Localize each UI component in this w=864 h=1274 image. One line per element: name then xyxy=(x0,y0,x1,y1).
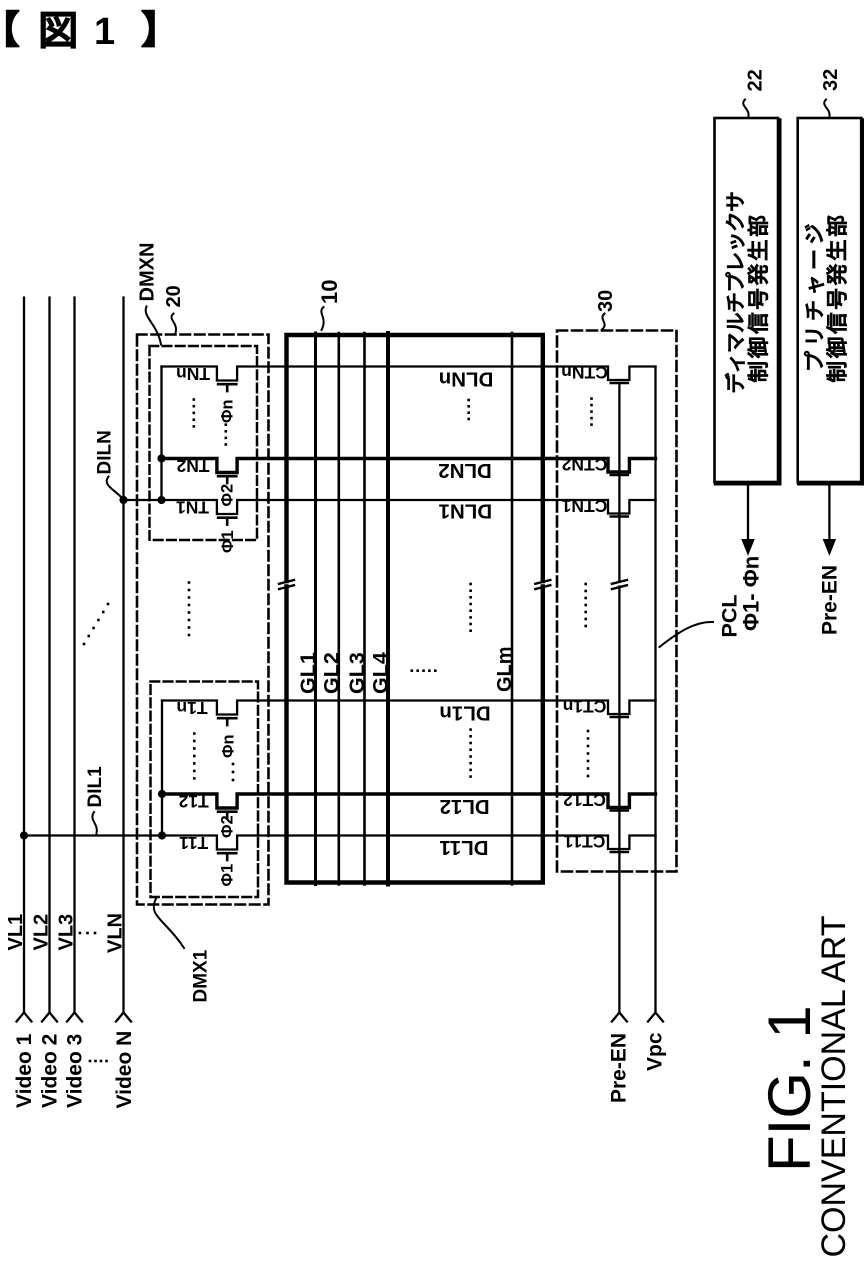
svg-text:Pre-EN: Pre-EN xyxy=(819,565,842,635)
svg-text:DL11: DL11 xyxy=(440,836,489,859)
svg-text:DLN2: DLN2 xyxy=(438,459,492,482)
svg-text:VL3: VL3 xyxy=(56,914,78,951)
svg-text:DILN: DILN xyxy=(95,430,116,474)
svg-text:DIL1: DIL1 xyxy=(85,766,106,808)
svg-text:TN2: TN2 xyxy=(176,456,209,476)
svg-text:DLNn: DLNn xyxy=(439,367,494,390)
svg-text:TNn: TNn xyxy=(176,364,210,384)
svg-text:CTNn: CTNn xyxy=(561,363,608,383)
svg-text:CT12: CT12 xyxy=(563,790,606,810)
svg-text:10: 10 xyxy=(317,280,342,304)
svg-text:Φ2: Φ2 xyxy=(219,815,237,838)
svg-text:32: 32 xyxy=(820,69,842,91)
svg-text:T12: T12 xyxy=(178,791,208,811)
svg-text:Φ1- Φn: Φ1- Φn xyxy=(739,556,764,631)
svg-text:DL1n: DL1n xyxy=(439,701,490,724)
svg-text:CT1n: CT1n xyxy=(563,697,607,717)
svg-text:Φn: Φn xyxy=(220,734,238,758)
svg-text:Φ1: Φ1 xyxy=(219,864,237,887)
svg-text:22: 22 xyxy=(745,69,767,91)
svg-text:GL4: GL4 xyxy=(369,652,393,694)
svg-text:T11: T11 xyxy=(179,833,208,853)
svg-text:20: 20 xyxy=(163,285,185,307)
svg-text:CT11: CT11 xyxy=(563,832,605,852)
svg-text:DL12: DL12 xyxy=(440,795,490,818)
svg-text:T1n: T1n xyxy=(176,698,207,718)
svg-text:Φ1: Φ1 xyxy=(219,530,237,553)
svg-text:GL2: GL2 xyxy=(319,652,343,694)
svg-text:Video 3: Video 3 xyxy=(64,1034,87,1108)
svg-text:Pre-EN: Pre-EN xyxy=(608,1033,631,1103)
svg-text:FIG. 1: FIG. 1 xyxy=(756,1005,823,1172)
svg-text:VL2: VL2 xyxy=(31,914,53,951)
svg-text:DMXN: DMXN xyxy=(137,243,159,302)
svg-text:Vpc: Vpc xyxy=(644,1032,667,1071)
svg-text:30: 30 xyxy=(595,290,617,312)
svg-text:GL1: GL1 xyxy=(296,652,320,694)
svg-text:Φ2: Φ2 xyxy=(219,484,237,507)
svg-text:TN1: TN1 xyxy=(176,497,209,517)
svg-text:CTN2: CTN2 xyxy=(561,455,607,475)
svg-text:GLm: GLm xyxy=(494,646,516,692)
svg-text:CTN1: CTN1 xyxy=(561,496,607,516)
svg-text:VL1: VL1 xyxy=(5,914,27,951)
svg-text:VLN: VLN xyxy=(105,913,127,953)
svg-text:CONVENTIONAL ART: CONVENTIONAL ART xyxy=(815,916,853,1258)
svg-text:Video 2: Video 2 xyxy=(39,1034,62,1108)
svg-text:Video N: Video N xyxy=(113,1031,136,1109)
svg-text:1: 1 xyxy=(94,11,115,53)
svg-text:GL3: GL3 xyxy=(345,652,369,694)
svg-text:DMX1: DMX1 xyxy=(191,949,212,1002)
svg-text:Video 1: Video 1 xyxy=(13,1033,36,1108)
svg-text:Φn: Φn xyxy=(219,399,237,423)
svg-text:DLN1: DLN1 xyxy=(439,500,493,523)
